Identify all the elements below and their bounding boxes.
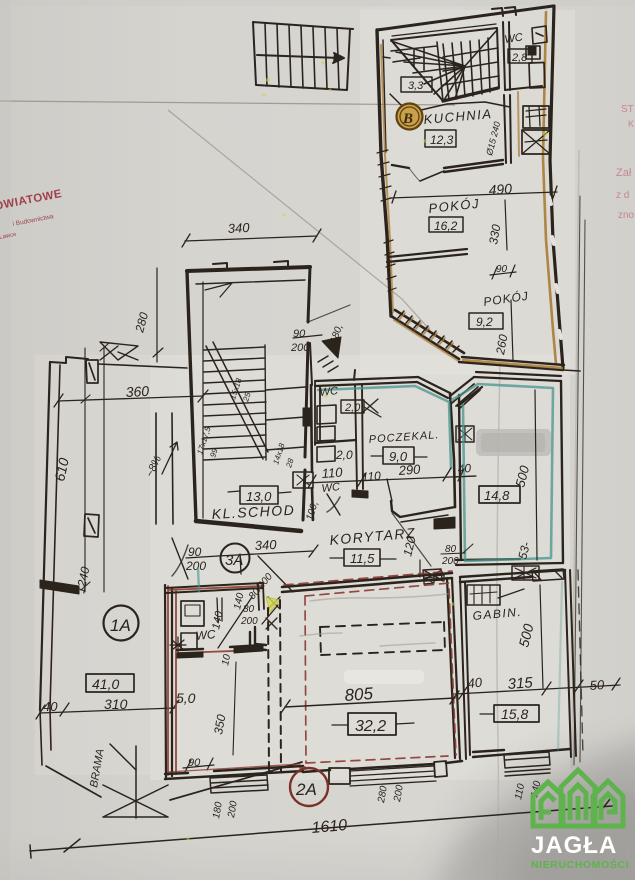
svg-text:200: 200: [185, 559, 206, 573]
svg-text:90: 90: [188, 757, 201, 769]
svg-text:5,0: 5,0: [176, 690, 196, 706]
svg-text:32,2: 32,2: [355, 718, 386, 735]
svg-text:3,3: 3,3: [408, 80, 424, 92]
svg-text:200: 200: [441, 556, 459, 567]
svg-text:16,2: 16,2: [434, 219, 458, 233]
svg-text:110: 110: [321, 465, 343, 481]
svg-text:14,8: 14,8: [484, 488, 510, 503]
svg-text:315: 315: [507, 674, 534, 693]
svg-text:110: 110: [361, 469, 381, 484]
svg-text:zno: zno: [618, 210, 635, 221]
svg-text:805: 805: [344, 684, 374, 705]
svg-text:90: 90: [293, 328, 306, 340]
svg-text:15,8: 15,8: [501, 706, 528, 722]
svg-text:z d: z d: [616, 190, 629, 201]
svg-text:490: 490: [488, 180, 513, 198]
svg-text:B: B: [402, 111, 413, 127]
svg-text:9,2: 9,2: [476, 315, 493, 329]
svg-text:1610: 1610: [311, 817, 348, 837]
svg-text:ST: ST: [621, 104, 634, 115]
svg-text:13,0: 13,0: [246, 489, 272, 504]
svg-text:200: 200: [240, 616, 258, 627]
svg-text:K: K: [628, 119, 634, 129]
svg-text:290: 290: [397, 461, 421, 478]
svg-text:90: 90: [496, 264, 508, 275]
svg-text:90: 90: [188, 545, 202, 559]
svg-text:WC: WC: [504, 32, 524, 46]
svg-text:2,0: 2,0: [344, 402, 361, 414]
svg-text:310: 310: [104, 696, 128, 712]
svg-text:2A: 2A: [295, 780, 317, 799]
svg-text:JAGŁA: JAGŁA: [531, 832, 617, 859]
svg-text:340: 340: [254, 537, 277, 553]
svg-text:50: 50: [589, 677, 605, 693]
svg-text:1A: 1A: [110, 616, 131, 635]
svg-text:200: 200: [290, 342, 310, 354]
svg-text:Zał: Zał: [616, 167, 632, 179]
svg-text:340: 340: [227, 220, 250, 236]
svg-text:40: 40: [467, 674, 484, 691]
svg-text:2,0: 2,0: [335, 448, 353, 462]
svg-text:80: 80: [243, 604, 255, 615]
svg-text:WC: WC: [319, 385, 339, 399]
svg-text:NIERUCHOMOŚCI: NIERUCHOMOŚCI: [531, 858, 629, 871]
svg-text:WC: WC: [321, 481, 341, 495]
svg-text:41,0: 41,0: [92, 676, 119, 692]
svg-text:12,3: 12,3: [430, 133, 454, 147]
svg-text:11,5: 11,5: [350, 551, 375, 566]
svg-text:360: 360: [125, 383, 149, 400]
